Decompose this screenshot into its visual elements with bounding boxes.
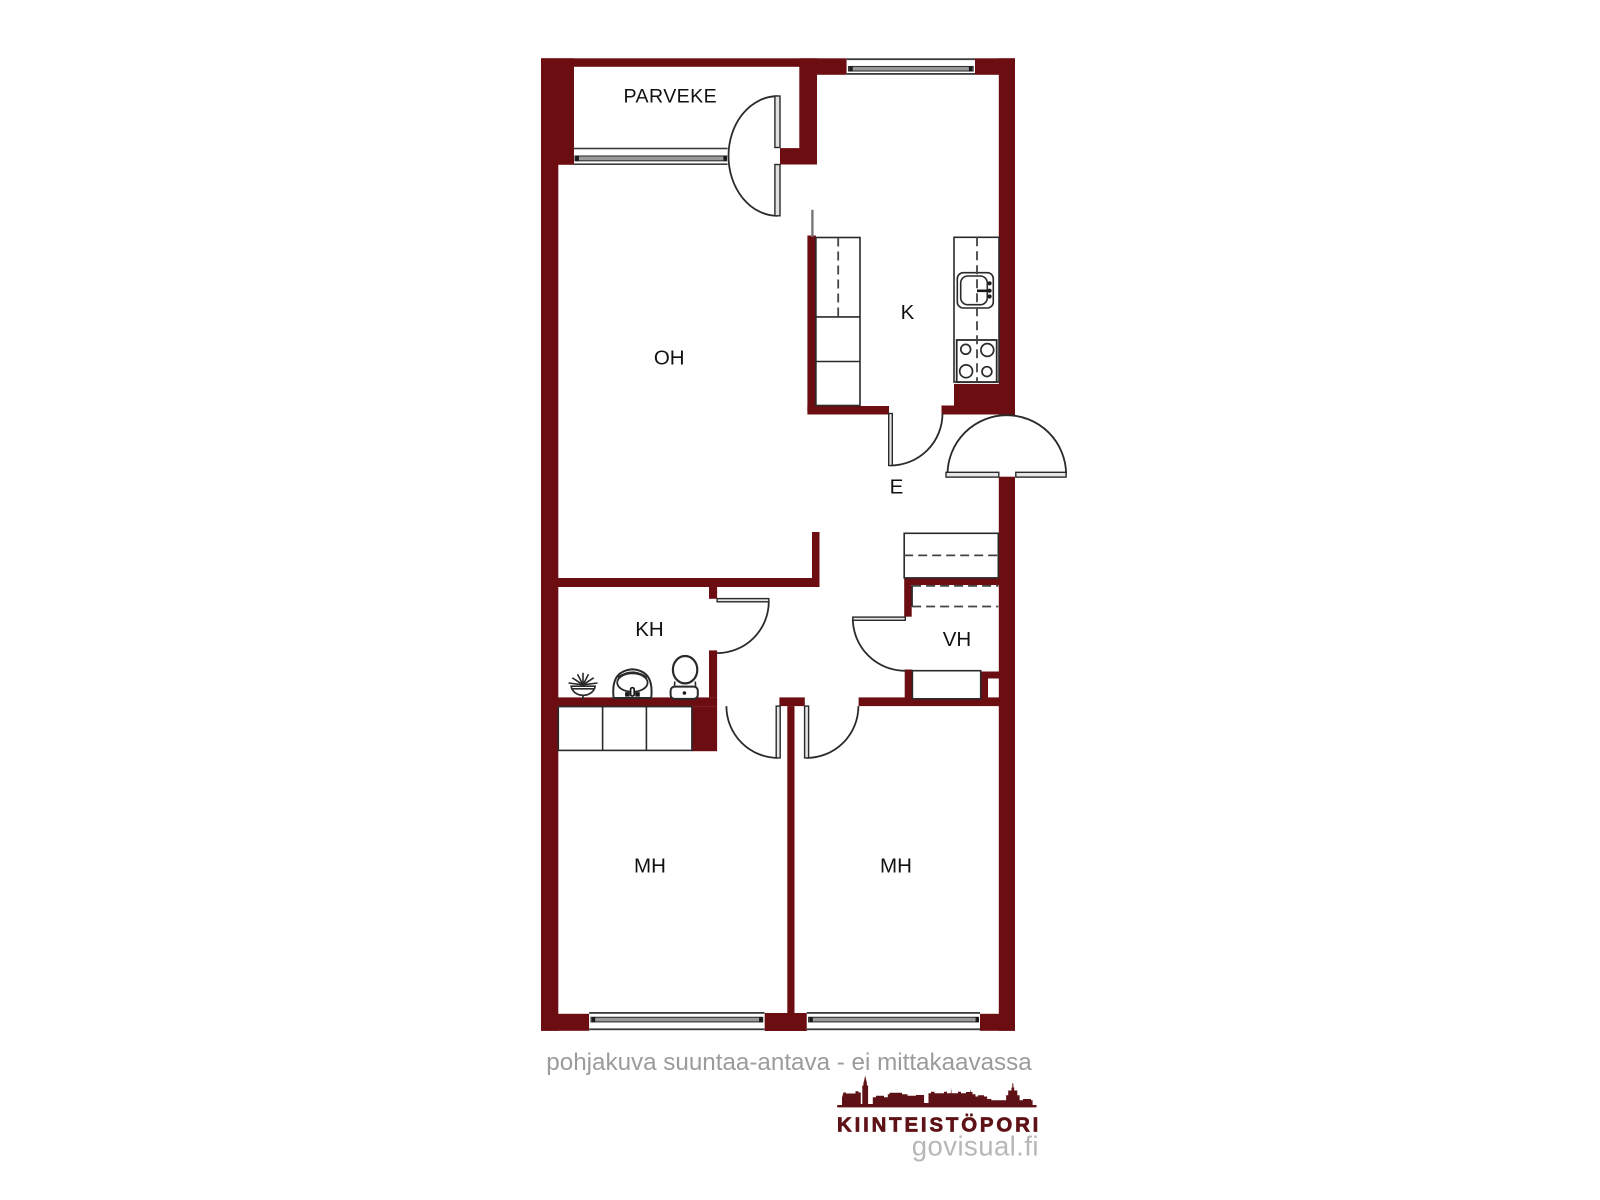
svg-text:VH: VH bbox=[943, 628, 971, 651]
svg-text:pohjakuva suuntaa-antava - ei: pohjakuva suuntaa-antava - ei mittakaava… bbox=[546, 1049, 1032, 1076]
svg-text:E: E bbox=[890, 476, 904, 499]
svg-text:govisual.fi: govisual.fi bbox=[912, 1131, 1039, 1162]
svg-text:MH: MH bbox=[634, 855, 666, 878]
svg-text:K: K bbox=[901, 301, 915, 324]
svg-text:PARVEKE: PARVEKE bbox=[624, 86, 718, 108]
svg-text:MH: MH bbox=[880, 855, 912, 878]
svg-text:KH: KH bbox=[635, 618, 663, 641]
svg-text:OH: OH bbox=[654, 346, 685, 369]
